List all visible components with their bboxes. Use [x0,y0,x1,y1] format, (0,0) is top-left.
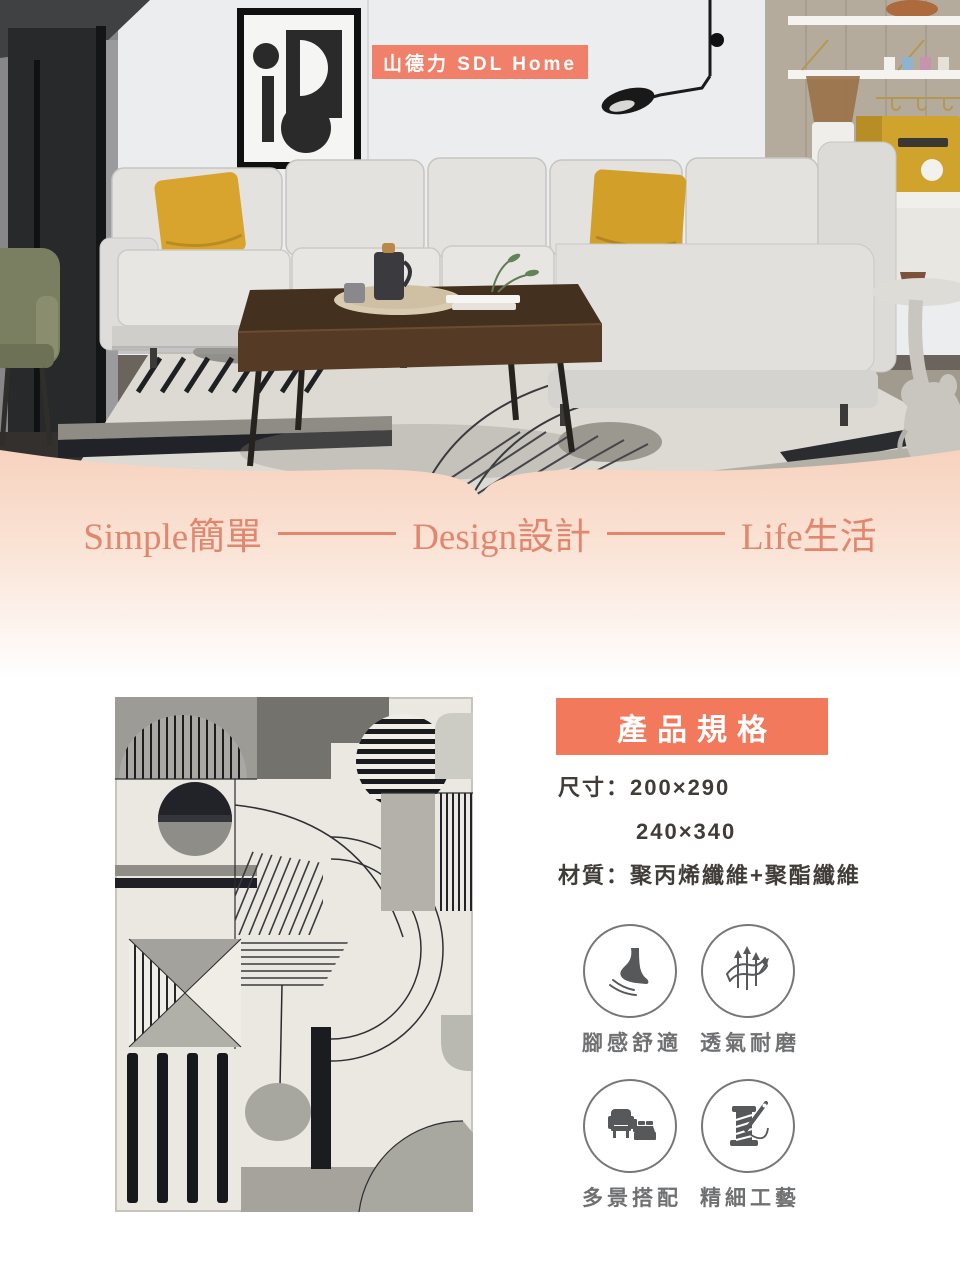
spec-material-line: 材質：聚丙烯纖維+聚酯纖維 [558,854,861,898]
feature-grid: 腳感舒適 透氣耐磨 [571,924,807,1212]
feature-foot-comfort: 腳感舒適 [578,924,682,1057]
feature-breathable-durable: 透氣耐磨 [696,924,800,1057]
hero-photo: 山德力 SDL Home [0,0,960,500]
feature-multi-scene: 多景搭配 [578,1079,682,1212]
feature-label: 精細工藝 [696,1182,800,1212]
feature-label: 透氣耐磨 [696,1027,800,1057]
section-title: 產品規格 [607,705,777,749]
tagline-simple: Simple簡單 [83,506,262,560]
section-title-banner: 產品規格 [556,698,828,755]
material-value: 聚丙烯纖維+聚酯纖維 [630,863,861,888]
tagline-life: Life生活 [741,506,877,560]
multi-scene-icon [603,1099,657,1153]
craftsmanship-icon [721,1099,775,1153]
size-value-2: 240×340 [636,819,736,844]
tagline-divider [607,532,725,535]
material-label: 材質： [558,863,630,888]
tagline-design: Design設計 [412,506,591,560]
wall-art [237,8,361,169]
tagline-divider [278,532,396,535]
product-page: { "brand": { "badge_label": "山德力 SDL Hom… [0,0,960,1268]
spec-size-line-2: 240×340 [558,810,861,854]
product-rug-image [115,697,473,1212]
mustard-pillow [154,171,247,261]
spec-size-line-1: 尺寸：200×290 [558,766,861,810]
size-label: 尺寸： [558,775,630,800]
feature-label: 腳感舒適 [578,1027,682,1057]
breathable-durable-icon [721,944,775,998]
size-value-1: 200×290 [630,775,730,800]
tagline: Simple簡單 Design設計 Life生活 [0,502,960,564]
spec-lines: 尺寸：200×290 240×340 材質：聚丙烯纖維+聚酯纖維 [558,766,861,898]
foot-comfort-icon [603,944,657,998]
feature-label: 多景搭配 [578,1182,682,1212]
feature-craftsmanship: 精細工藝 [696,1079,800,1212]
brand-badge: 山德力 SDL Home [372,45,588,79]
